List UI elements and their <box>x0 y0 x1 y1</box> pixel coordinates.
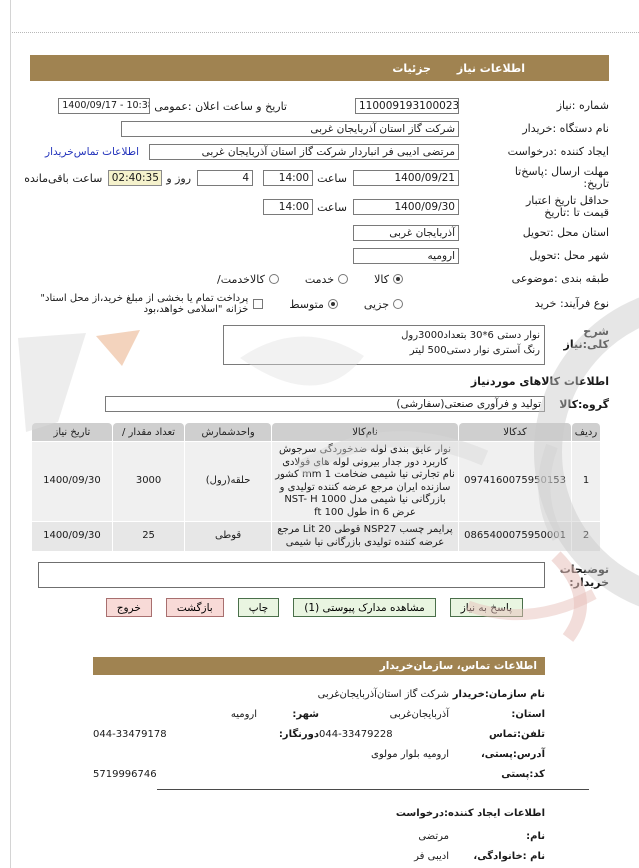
contact-city-value: ارومیه <box>93 709 257 720</box>
buyer-notes-label-line1: توضیحات <box>560 563 609 576</box>
treasury-checkbox-label: پرداخت تمام یا بخشی از مبلغ خرید،از محل … <box>30 293 248 315</box>
row-request-creator: ایجاد کننده :درخواست مرتضی ادیبی فر انبا… <box>30 143 609 161</box>
goods-table: ردیف کدکالا نام‌کالا واحدشمارش تعداد مقد… <box>31 422 601 552</box>
delivery-province-field[interactable]: آذربایجان غربی <box>353 225 459 241</box>
process-type-label: نوع فرآیند: خرید <box>459 298 609 310</box>
classification-label: طبقه بندی :موضوعی <box>459 273 609 285</box>
goods-table-header-row: ردیف کدکالا نام‌کالا واحدشمارش تعداد مقد… <box>32 423 600 441</box>
contact-location-row: استان: آذربایجان‌غربی شهر: ارومیه <box>93 709 545 720</box>
option-goods-service: کالاخدمت/ <box>217 273 279 286</box>
action-buttons: پاسخ به نیاز مشاهده مدارک پیوستی (1) چاپ… <box>30 598 609 617</box>
required-goods-header: اطلاعات کالاهای موردنیاز <box>30 375 609 388</box>
goods-service-radio-label: کالاخدمت/ <box>217 273 265 286</box>
goods-group-field[interactable]: تولید و فرآوری صنعتی(سفارشی) <box>105 396 545 412</box>
exit-button[interactable]: خروج <box>106 598 152 617</box>
contact-phone-value: 044-33479228 <box>319 729 449 740</box>
validity-date-field[interactable]: 1400/09/30 <box>353 199 459 215</box>
response-deadline-label-line2: تاریخ: <box>583 177 609 190</box>
request-creator-section-header: اطلاعات ایجاد کننده:درخواست <box>93 808 545 819</box>
contact-province-value: آذربایجان‌غربی <box>319 709 449 720</box>
announce-label: تاریخ و ساعت اعلان :عمومی <box>154 100 287 113</box>
row-goods-group: گروه:کالا تولید و فرآوری صنعتی(سفارشی) <box>30 396 609 412</box>
deadline-hour-label: ساعت <box>317 172 347 185</box>
row-price-validity: حداقل تاریخ اعتبار قیمت تا :تاریخ 1400/0… <box>30 195 609 219</box>
option-treasury: پرداخت تمام یا بخشی از مبلغ خرید،از محل … <box>30 293 263 315</box>
medium-radio-label: متوسط <box>289 298 324 311</box>
row-delivery-province: استان محل :تحویل آذربایجان غربی <box>30 224 609 242</box>
goods-radio[interactable] <box>393 274 403 284</box>
days-remaining-label: روز و <box>166 172 191 185</box>
deadline-hour-field[interactable]: 14:00 <box>263 170 313 186</box>
col-item-code: کدکالا <box>459 423 571 441</box>
contact-address-label: آدرس:پستی، <box>449 749 545 760</box>
cell-need-date: 1400/09/30 <box>32 442 112 521</box>
row-buyer-org: نام دستگاه :خریدار شرکت گاز استان آذربای… <box>30 120 609 138</box>
response-deadline-label: مهلت ارسال :پاسخ‌تا تاریخ: <box>459 166 609 190</box>
dotted-divider <box>12 32 639 33</box>
validity-hour-field[interactable]: 14:00 <box>263 199 313 215</box>
need-form: شماره :نیاز 1100091931000230 تاریخ و ساع… <box>30 97 609 617</box>
contact-postal-label: کد:پستی <box>449 769 545 780</box>
delivery-province-label: استان محل :تحویل <box>459 227 609 239</box>
validity-hour-label: ساعت <box>317 201 347 214</box>
cell-row-number: 2 <box>572 522 600 551</box>
need-number-field[interactable]: 1100091931000230 <box>355 98 459 114</box>
cell-item-name: پرایمر چسب NSP27 قوطی 20 Lit مرجع عرضه ک… <box>272 522 458 551</box>
option-goods: کالا <box>374 273 403 286</box>
creator-last-name-row: نام :خانوادگی، ادیبی فر <box>93 851 545 862</box>
print-button[interactable]: چاپ <box>238 598 280 617</box>
contact-fax-value: 044-33479178 <box>93 729 257 740</box>
row-response-deadline: مهلت ارسال :پاسخ‌تا تاریخ: 1400/09/21 سا… <box>30 166 609 190</box>
deadline-date-field[interactable]: 1400/09/21 <box>353 170 459 186</box>
option-partial: جزیی <box>364 298 403 311</box>
col-row-number: ردیف <box>572 423 600 441</box>
contact-province-label: استان: <box>449 709 545 720</box>
hours-remaining-label: ساعت باقی‌مانده <box>24 172 102 185</box>
creator-first-name-row: نام: مرتضی <box>93 831 545 842</box>
request-creator-section: اطلاعات ایجاد کننده:درخواست نام: مرتضی ن… <box>93 808 545 868</box>
row-process-type: نوع فرآیند: خرید جزیی متوسط پرداخت تمام … <box>30 293 609 315</box>
announce-datetime-field[interactable]: 1400/09/17 - 10:38 <box>58 98 150 114</box>
contact-postal-value: 5719996746 <box>93 769 449 780</box>
contact-phone-label: تلفن:تماس <box>449 729 545 740</box>
row-delivery-city: شهر محل :تحویل ارومیه <box>30 247 609 265</box>
col-unit: واحدشمارش <box>185 423 271 441</box>
creator-last-name-value: ادیبی فر <box>93 851 449 862</box>
cell-unit: حلقه(رول) <box>185 442 271 521</box>
contact-org-value: شرکت گاز استان‌آذربایجان‌غربی <box>93 689 449 700</box>
buyer-notes-field[interactable] <box>38 562 545 588</box>
table-row: 2 0865400075950001 پرایمر چسب NSP27 قوطی… <box>32 522 600 551</box>
need-number-label: شماره :نیاز <box>459 100 609 112</box>
cell-item-name: نوار عایق بندی لوله ضدخوردگی سرجوش کاربر… <box>272 442 458 521</box>
creator-first-name-label: نام: <box>449 831 545 842</box>
countdown-timer: 02:40:35 <box>108 170 162 186</box>
cell-quantity: 25 <box>113 522 184 551</box>
respond-to-need-button[interactable]: پاسخ به نیاز <box>450 598 523 617</box>
buyer-notes-label-line2: خریدار: <box>569 576 609 589</box>
buyer-org-label: نام دستگاه :خریدار <box>459 123 609 135</box>
row-need-number: شماره :نیاز 1100091931000230 تاریخ و ساع… <box>30 97 609 115</box>
row-buyer-notes: توضیحات خریدار: <box>30 562 609 589</box>
creator-first-name-value: مرتضی <box>93 831 449 842</box>
cell-need-date: 1400/09/30 <box>32 522 112 551</box>
request-creator-label: ایجاد کننده :درخواست <box>459 146 609 158</box>
delivery-city-label: شهر محل :تحویل <box>459 250 609 262</box>
buyer-org-field[interactable]: شرکت گاز استان آذربایجان غربی <box>121 121 459 137</box>
contact-postal-row: کد:پستی 5719996746 <box>93 769 545 780</box>
cell-item-code: 0974160075950153 <box>459 442 571 521</box>
table-row: 1 0974160075950153 نوار عایق بندی لوله ض… <box>32 442 600 521</box>
contact-fax-label: دورنگار: <box>257 729 319 740</box>
medium-radio[interactable] <box>328 299 338 309</box>
goods-group-label: گروه:کالا <box>545 398 609 411</box>
buyer-contact-section: نام سازمان:خریدار شرکت گاز استان‌آذربایج… <box>93 689 545 780</box>
row-need-description: شرح کلی:نیاز نوار دستی 6*30 بتعداد3000رو… <box>30 325 609 365</box>
treasury-checkbox[interactable] <box>253 299 263 309</box>
col-item-name: نام‌کالا <box>272 423 458 441</box>
tab-need-info[interactable]: اطلاعات نیاز <box>457 62 525 75</box>
price-validity-label-line2: قیمت تا :تاریخ <box>544 206 609 219</box>
row-classification: طبقه بندی :موضوعی کالا خدمت کالاخدمت/ <box>30 270 609 288</box>
contact-org-label: نام سازمان:خریدار <box>449 689 545 700</box>
partial-radio[interactable] <box>393 299 403 309</box>
option-medium: متوسط <box>289 298 338 311</box>
need-description-label: شرح کلی:نیاز <box>545 325 609 351</box>
contact-address-row: آدرس:پستی، ارومیه بلوار مولوی <box>93 749 545 760</box>
menubar: اطلاعات نیاز جزئیات <box>30 55 609 81</box>
option-service: خدمت <box>305 273 348 286</box>
partial-radio-label: جزیی <box>364 298 389 311</box>
service-radio[interactable] <box>338 274 348 284</box>
cell-unit: قوطی <box>185 522 271 551</box>
back-button[interactable]: بازگشت <box>166 598 224 617</box>
cell-row-number: 1 <box>572 442 600 521</box>
cell-item-code: 0865400075950001 <box>459 522 571 551</box>
need-description-line2: رنگ آستری نوار دستی500 لیتر <box>410 345 540 356</box>
buyer-notes-label: توضیحات خریدار: <box>545 562 609 589</box>
contact-city-label: شهر: <box>257 709 319 720</box>
contact-address-value: ارومیه بلوار مولوی <box>93 749 449 760</box>
buyer-contact-link[interactable]: اطلاعات تماس‌خریدار <box>45 146 139 158</box>
tab-details[interactable]: جزئیات <box>392 62 431 75</box>
goods-radio-label: کالا <box>374 273 389 286</box>
procurement-need-page: اطلاعات نیاز جزئیات شماره :نیاز 11000919… <box>0 0 639 868</box>
goods-service-radio[interactable] <box>269 274 279 284</box>
col-need-date: تاریخ نیاز <box>32 423 112 441</box>
price-validity-label: حداقل تاریخ اعتبار قیمت تا :تاریخ <box>459 195 609 219</box>
deadline-days-field[interactable]: 4 <box>197 170 253 186</box>
delivery-city-field[interactable]: ارومیه <box>353 248 459 264</box>
contact-phone-row: تلفن:تماس 044-33479228 دورنگار: 044-3347… <box>93 729 545 740</box>
request-creator-field[interactable]: مرتضی ادیبی فر انباردار شرکت گاز استان آ… <box>149 144 459 160</box>
buyer-contact-section-header: اطلاعات تماس، سازمان‌خریدار <box>93 657 545 675</box>
need-description-line1: نوار دستی 6*30 بتعداد3000رول <box>401 330 540 341</box>
cell-quantity: 3000 <box>113 442 184 521</box>
col-quantity: تعداد مقدار / <box>113 423 184 441</box>
section-separator <box>157 789 589 790</box>
need-description-field[interactable]: نوار دستی 6*30 بتعداد3000رول رنگ آستری ن… <box>223 325 545 365</box>
creator-last-name-label: نام :خانوادگی، <box>449 851 545 862</box>
contact-org-row: نام سازمان:خریدار شرکت گاز استان‌آذربایج… <box>93 689 545 700</box>
view-attached-docs-button[interactable]: مشاهده مدارک پیوستی (1) <box>293 598 435 617</box>
service-radio-label: خدمت <box>305 273 334 286</box>
